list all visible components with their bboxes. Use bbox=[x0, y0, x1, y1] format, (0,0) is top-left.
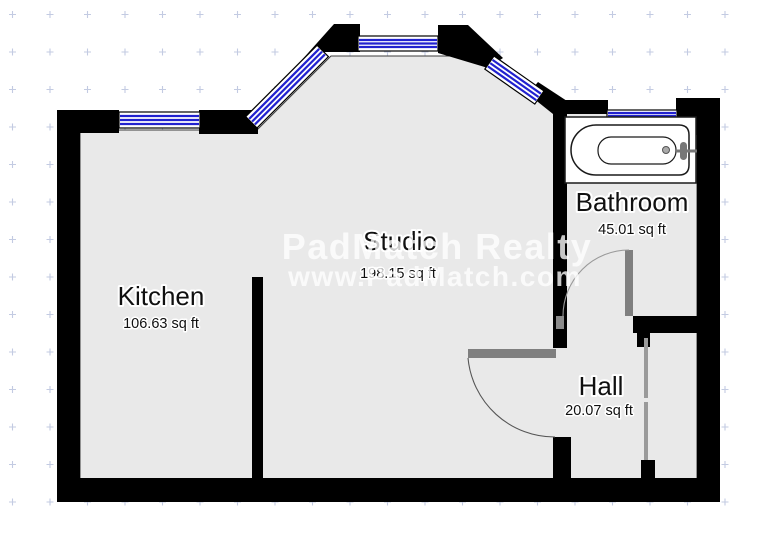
closet-jamb-top bbox=[637, 333, 650, 347]
bathtub-icon bbox=[565, 117, 697, 183]
bathroom-hall-wall bbox=[633, 316, 697, 333]
kitchen-studio-wall bbox=[252, 277, 263, 478]
kitchen-area: 106.63 sq ft bbox=[123, 316, 199, 332]
kitchen-window bbox=[119, 112, 200, 128]
watermark: PadMatch Realty www.PadMatch.com bbox=[282, 226, 593, 292]
closet-door-upper bbox=[644, 338, 648, 398]
bathtub-drain bbox=[663, 147, 670, 154]
kitchen-label: Kitchen bbox=[118, 281, 205, 311]
hall-door-stub-wall bbox=[553, 437, 571, 478]
faucet-handle bbox=[680, 142, 687, 160]
hall-area: 20.07 sq ft bbox=[565, 403, 633, 419]
floorplan-canvas: Kitchen 106.63 sq ft Studio 198.15 sq ft… bbox=[0, 0, 757, 533]
bathroom-door-jamb bbox=[556, 316, 564, 329]
bathroom-label: Bathroom bbox=[576, 187, 689, 217]
floorplan: Kitchen 106.63 sq ft Studio 198.15 sq ft… bbox=[0, 0, 757, 533]
right-wall bbox=[697, 98, 720, 502]
hall-label: Hall bbox=[579, 371, 624, 401]
bathroom-door-leaf bbox=[625, 250, 633, 316]
bathroom-top-wall bbox=[560, 100, 608, 114]
top-left-wall bbox=[57, 110, 119, 133]
hall-door-leaf bbox=[468, 349, 556, 358]
closet-door-lower bbox=[644, 402, 648, 460]
bay-window-center bbox=[358, 36, 438, 51]
bathroom-area: 45.01 sq ft bbox=[598, 222, 666, 238]
closet-jamb-bottom bbox=[641, 460, 655, 478]
left-wall bbox=[57, 110, 80, 502]
bottom-wall bbox=[57, 478, 720, 502]
watermark-line2: www.PadMatch.com bbox=[287, 261, 582, 292]
